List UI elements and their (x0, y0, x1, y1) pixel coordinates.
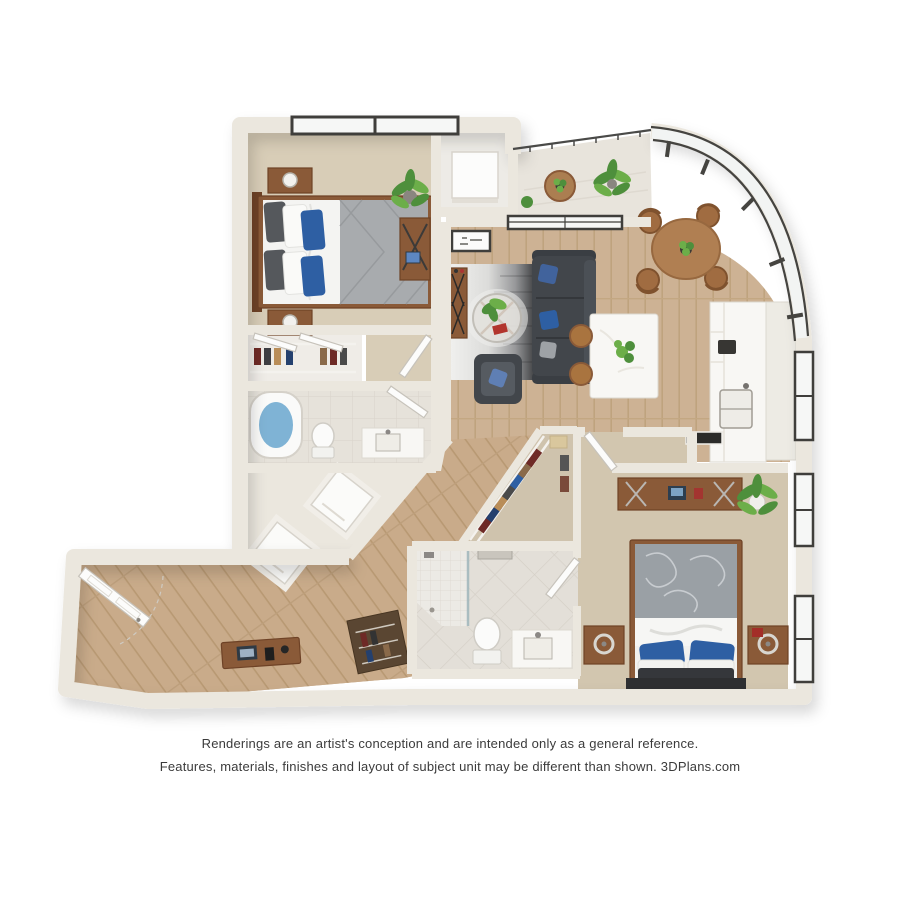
red-notebook (694, 488, 703, 499)
pillow-blue (300, 209, 325, 251)
floor-plan-page: Renderings are an artist's conception an… (0, 0, 900, 900)
bar-stool (570, 325, 592, 347)
disclaimer-line-2: Features, materials, finishes and layout… (0, 756, 900, 779)
phone (265, 647, 275, 661)
red-books (752, 628, 763, 637)
faucet (386, 430, 391, 435)
vanity-basin (376, 434, 400, 451)
bar-stool (570, 363, 592, 385)
sofa-pillow-print (537, 263, 558, 284)
disclaimer: Renderings are an artist's conception an… (0, 733, 900, 779)
upper-cabinets (766, 302, 796, 460)
bedroom-1-window (292, 117, 458, 134)
coffee-maker (718, 340, 736, 354)
bed-2-sheet (635, 618, 737, 646)
sofa-pillow-blue (539, 310, 560, 331)
pillow-blue (300, 255, 325, 297)
table-lamp (283, 173, 297, 187)
storage-box (452, 152, 498, 198)
disclaimer-line-1: Renderings are an artist's conception an… (0, 733, 900, 756)
faucet (535, 632, 541, 638)
toilet (474, 618, 500, 650)
tablet (406, 252, 420, 263)
faucet (743, 383, 749, 389)
storage-room (452, 152, 498, 203)
bed-2-headboard (626, 678, 746, 690)
sofa-pillow-gray (539, 341, 557, 359)
shower-head (424, 552, 434, 558)
shower-drain (430, 608, 435, 613)
toilet (312, 423, 334, 449)
shelf-box (550, 436, 567, 448)
entry-console-table (221, 637, 301, 668)
toilet-tank (312, 447, 334, 458)
toilet-tank (473, 650, 501, 664)
balcony-plant-small (521, 196, 533, 208)
kitchen-window (795, 352, 813, 440)
sliding-glass-door (508, 216, 622, 229)
bath-water (259, 402, 293, 448)
bedroom-2-window-lower (795, 596, 813, 682)
bedroom-2-window-upper (795, 474, 813, 546)
dining-chair (637, 269, 659, 293)
vanity-basin (524, 638, 552, 659)
coat-shelving (347, 610, 409, 674)
